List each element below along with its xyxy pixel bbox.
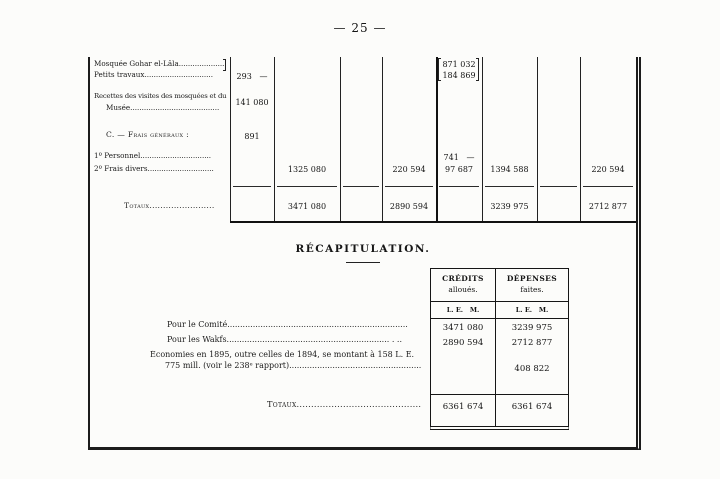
ledger-cell-frais-divers-c6: 1394 588 bbox=[482, 165, 537, 174]
recap-header-credits: CRÉDITS bbox=[431, 274, 495, 283]
totals-rule bbox=[233, 186, 271, 187]
totals-rule bbox=[485, 186, 534, 187]
ledger-cell-frais-divers-c8: 220 594 bbox=[580, 165, 636, 174]
ledger-bottom-rule bbox=[230, 221, 636, 223]
ledger-cell-totaux-c4: 2890 594 bbox=[382, 202, 436, 211]
recap-cell-totaux-credits: 6361 674 bbox=[431, 402, 495, 412]
ledger-label-totaux: Totaux........................ bbox=[124, 201, 227, 210]
totals-rule bbox=[385, 186, 433, 187]
recap-subheader-alloues: alloués. bbox=[431, 285, 495, 294]
column-divider bbox=[537, 57, 538, 222]
recap-table: CRÉDITS alloués. DÉPENSES faites. L. E. … bbox=[430, 268, 569, 430]
scanned-page: — 25 — Mosquée Gohar el-Lâla......... bbox=[0, 0, 720, 479]
ledger-cell-recettes-c1: 141 080 bbox=[230, 98, 274, 107]
recap-label-totaux: Totaux..................................… bbox=[267, 399, 430, 409]
column-divider bbox=[580, 57, 581, 222]
ledger-cell-frais-generaux-c1: 891 bbox=[230, 132, 274, 141]
ledger-cell-totaux-c6: 3239 975 bbox=[482, 202, 537, 211]
totals-rule bbox=[439, 186, 479, 187]
recap-totals-rule bbox=[431, 394, 568, 395]
brace-right bbox=[476, 58, 479, 81]
totals-rule bbox=[277, 186, 337, 187]
recap-cell-comite-credits: 3471 080 bbox=[431, 323, 495, 333]
brace-left bbox=[438, 58, 441, 81]
page-number: — 25 — bbox=[0, 21, 720, 35]
ledger-label-frais-generaux: C. — Frais généraux : bbox=[106, 130, 227, 139]
recap-title-rule bbox=[346, 262, 380, 263]
recap-title: RÉCAPITULATION. bbox=[90, 243, 636, 255]
column-divider bbox=[340, 57, 341, 222]
ledger-cell-totaux-c8: 2712 877 bbox=[580, 202, 636, 211]
recap-cell-economies-depenses: 408 822 bbox=[496, 364, 568, 374]
ledger-label-mosquee: Mosquée Gohar el-Lâla...................… bbox=[94, 59, 227, 68]
recap-label-economies-line2: 775 mill. (voir le 238ᵉ rapport)........… bbox=[165, 361, 430, 370]
column-divider bbox=[482, 57, 483, 222]
recap-cell-wakfs-credits: 2890 594 bbox=[431, 338, 495, 348]
ledger-cell-personnel-c5: 741 — bbox=[436, 153, 482, 162]
totals-rule bbox=[540, 186, 577, 187]
recap-label-economies-line1: Économies en 1895, outre celles de 1894,… bbox=[150, 350, 430, 359]
column-divider bbox=[382, 57, 383, 222]
brace-right-small bbox=[223, 59, 226, 71]
ledger-label-petits-travaux: Petits travaux..........................… bbox=[94, 70, 227, 79]
ledger-cell-petits-c1: 293 — bbox=[230, 72, 274, 81]
recap-units-col1: L. E. M. bbox=[431, 306, 495, 314]
ledger-label-frais-divers: 2º Frais divers.........................… bbox=[94, 164, 227, 173]
recap-cell-wakfs-depenses: 2712 877 bbox=[496, 338, 568, 348]
recap-units-rule bbox=[431, 318, 568, 319]
ledger-cell-frais-divers-c2: 1325 080 bbox=[274, 165, 340, 174]
ledger-cell-frais-divers-c5: 97 687 bbox=[436, 165, 482, 174]
recap-subheader-faites: faites. bbox=[496, 285, 568, 294]
recap-units-col2: L. E. M. bbox=[496, 306, 568, 314]
recap-cell-comite-depenses: 3239 975 bbox=[496, 323, 568, 333]
recap-cell-totaux-depenses: 6361 674 bbox=[496, 402, 568, 412]
column-divider bbox=[274, 57, 275, 222]
ledger-cell-frais-divers-c4: 220 594 bbox=[382, 165, 436, 174]
content-frame: Mosquée Gohar el-Lâla...................… bbox=[88, 57, 641, 450]
recap-label-comite: Pour le Comité..........................… bbox=[167, 320, 430, 329]
recap-header-rule bbox=[431, 301, 568, 302]
totals-rule bbox=[343, 186, 379, 187]
totals-rule bbox=[583, 186, 633, 187]
recap-header-depenses: DÉPENSES bbox=[496, 274, 568, 283]
ledger-label-personnel: 1º Personnel............................… bbox=[94, 151, 227, 160]
ledger-label-recettes-line1: Recettes des visites des mosquées et du bbox=[94, 92, 228, 100]
recap-label-wakfs: Pour les Wakfs..........................… bbox=[167, 335, 430, 344]
column-divider-heavy bbox=[436, 57, 438, 222]
ledger-label-recettes-line2: Musée...................................… bbox=[106, 103, 227, 112]
ledger-cell-totaux-c2: 3471 080 bbox=[274, 202, 340, 211]
